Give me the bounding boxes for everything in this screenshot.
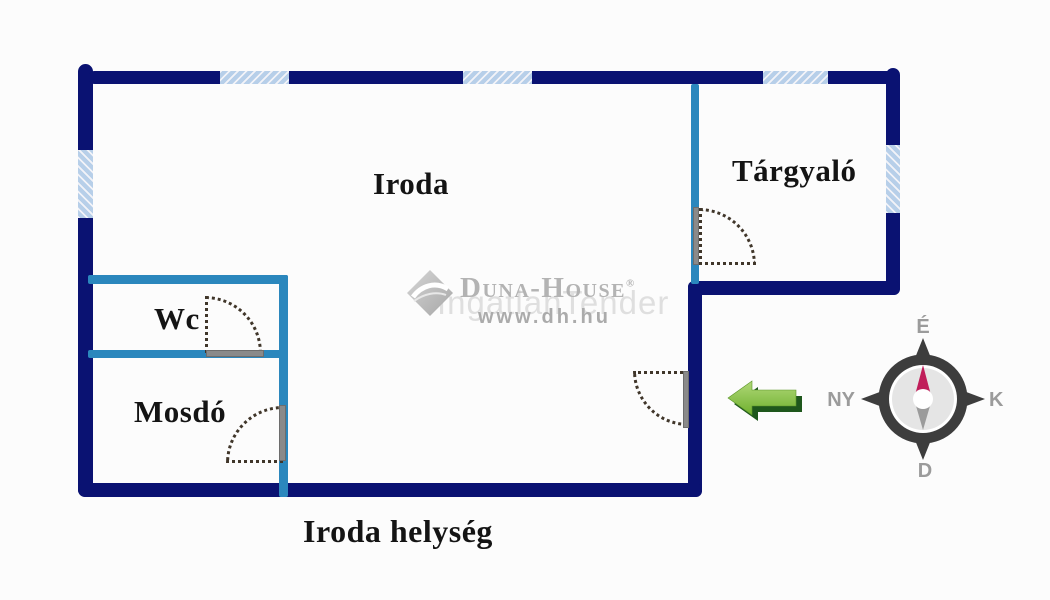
compass-label-east: K bbox=[989, 389, 1004, 411]
room-label-wc: Wc bbox=[154, 301, 200, 337]
window-icon-top-3 bbox=[763, 71, 828, 84]
door-swing-mosdo bbox=[226, 406, 283, 463]
room-label-iroda: Iroda bbox=[373, 166, 449, 202]
window-icon-top-2 bbox=[463, 71, 532, 84]
door-leaf-wc bbox=[206, 350, 264, 357]
compass-label-south: D bbox=[918, 460, 932, 482]
registered-mark: ® bbox=[626, 277, 636, 289]
partition-wc-right bbox=[279, 275, 288, 497]
brand-logo-icon bbox=[405, 268, 455, 318]
compass-rose: É K D NY bbox=[825, 312, 1010, 487]
partition-wc-top bbox=[88, 275, 288, 284]
door-leaf-mosdo bbox=[279, 405, 286, 461]
floor-plan-canvas: IngatlanTender Duna-House® www.dh.hu Iro… bbox=[0, 0, 1050, 600]
wall-targyalo-bottom bbox=[688, 281, 900, 295]
room-label-targyalo: Tárgyaló bbox=[732, 153, 857, 189]
door-swing-wc bbox=[205, 296, 262, 353]
window-icon-right bbox=[886, 145, 900, 213]
brand-name-text: Duna-House bbox=[460, 272, 626, 304]
plan-caption: Iroda helység bbox=[303, 513, 493, 550]
door-swing-targyalo bbox=[699, 208, 756, 265]
compass-label-west: NY bbox=[827, 389, 855, 411]
brand-url: www.dh.hu bbox=[478, 306, 611, 329]
compass-label-north: É bbox=[916, 315, 929, 338]
window-icon-left bbox=[78, 150, 93, 218]
wall-bottom bbox=[78, 483, 702, 497]
window-icon-top-1 bbox=[220, 71, 289, 84]
entrance-arrow-icon bbox=[718, 374, 810, 426]
room-label-mosdo: Mosdó bbox=[134, 394, 226, 430]
wall-entry bbox=[688, 281, 702, 497]
brand-name: Duna-House® bbox=[460, 272, 636, 305]
compass-hub bbox=[913, 389, 933, 409]
door-leaf-targyalo bbox=[693, 207, 699, 265]
door-leaf-entry bbox=[683, 371, 689, 428]
door-swing-entry bbox=[633, 371, 688, 426]
